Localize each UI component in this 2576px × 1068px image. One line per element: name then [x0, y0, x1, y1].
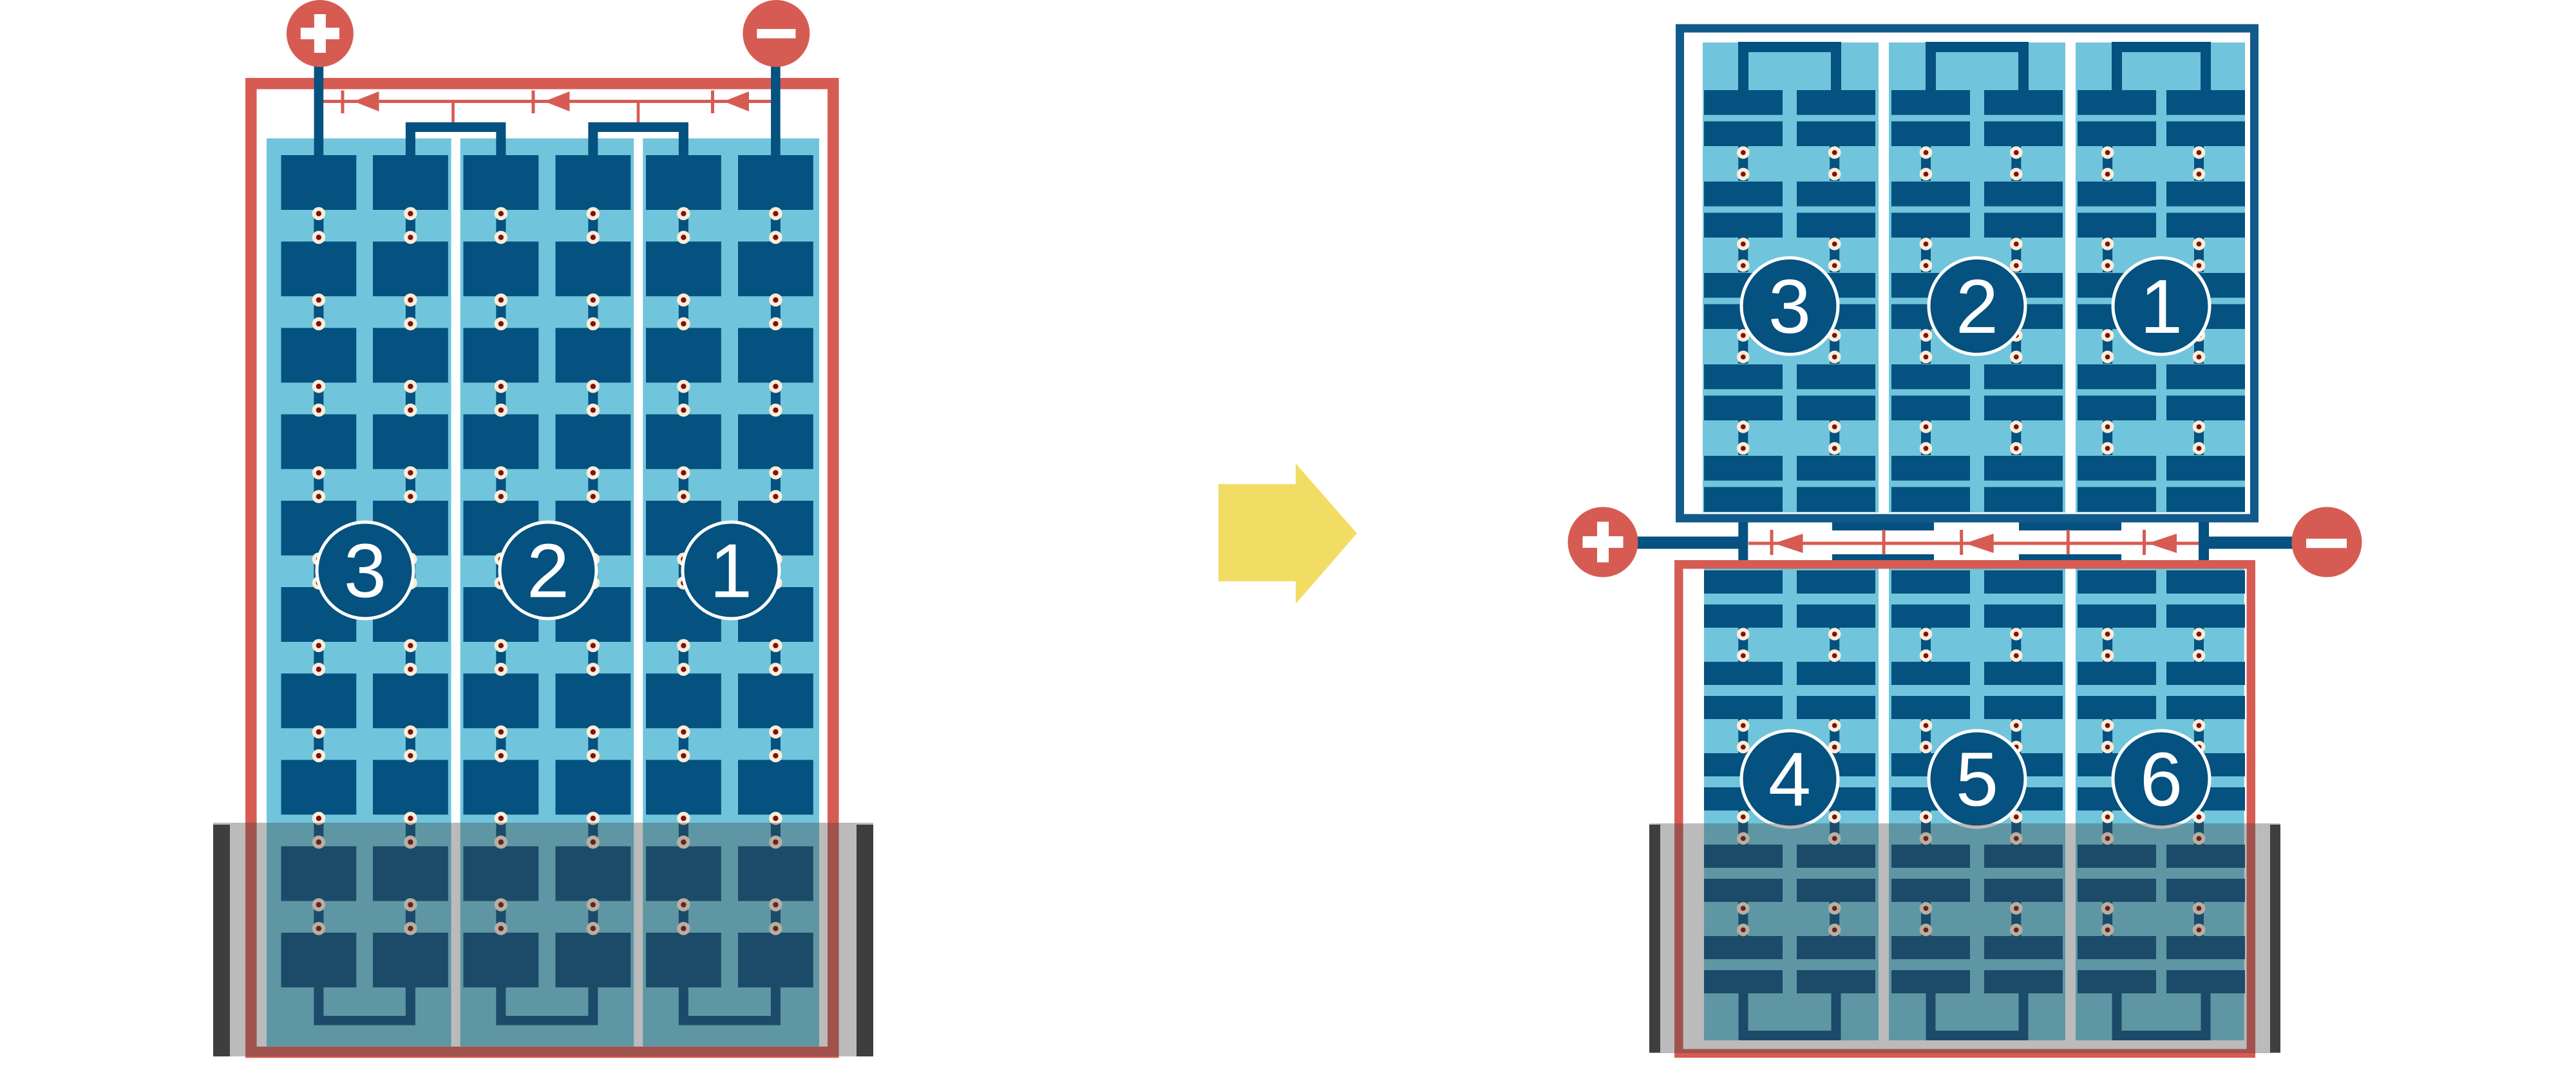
svg-text:3: 3 [344, 529, 386, 614]
svg-text:2: 2 [527, 529, 569, 614]
svg-text:5: 5 [1956, 737, 1998, 823]
svg-text:1: 1 [2140, 264, 2183, 350]
svg-text:6: 6 [2140, 737, 2183, 823]
svg-text:1: 1 [710, 529, 752, 614]
svg-text:4: 4 [1768, 737, 1811, 823]
svg-text:3: 3 [1768, 264, 1811, 350]
svg-text:2: 2 [1956, 264, 1998, 350]
